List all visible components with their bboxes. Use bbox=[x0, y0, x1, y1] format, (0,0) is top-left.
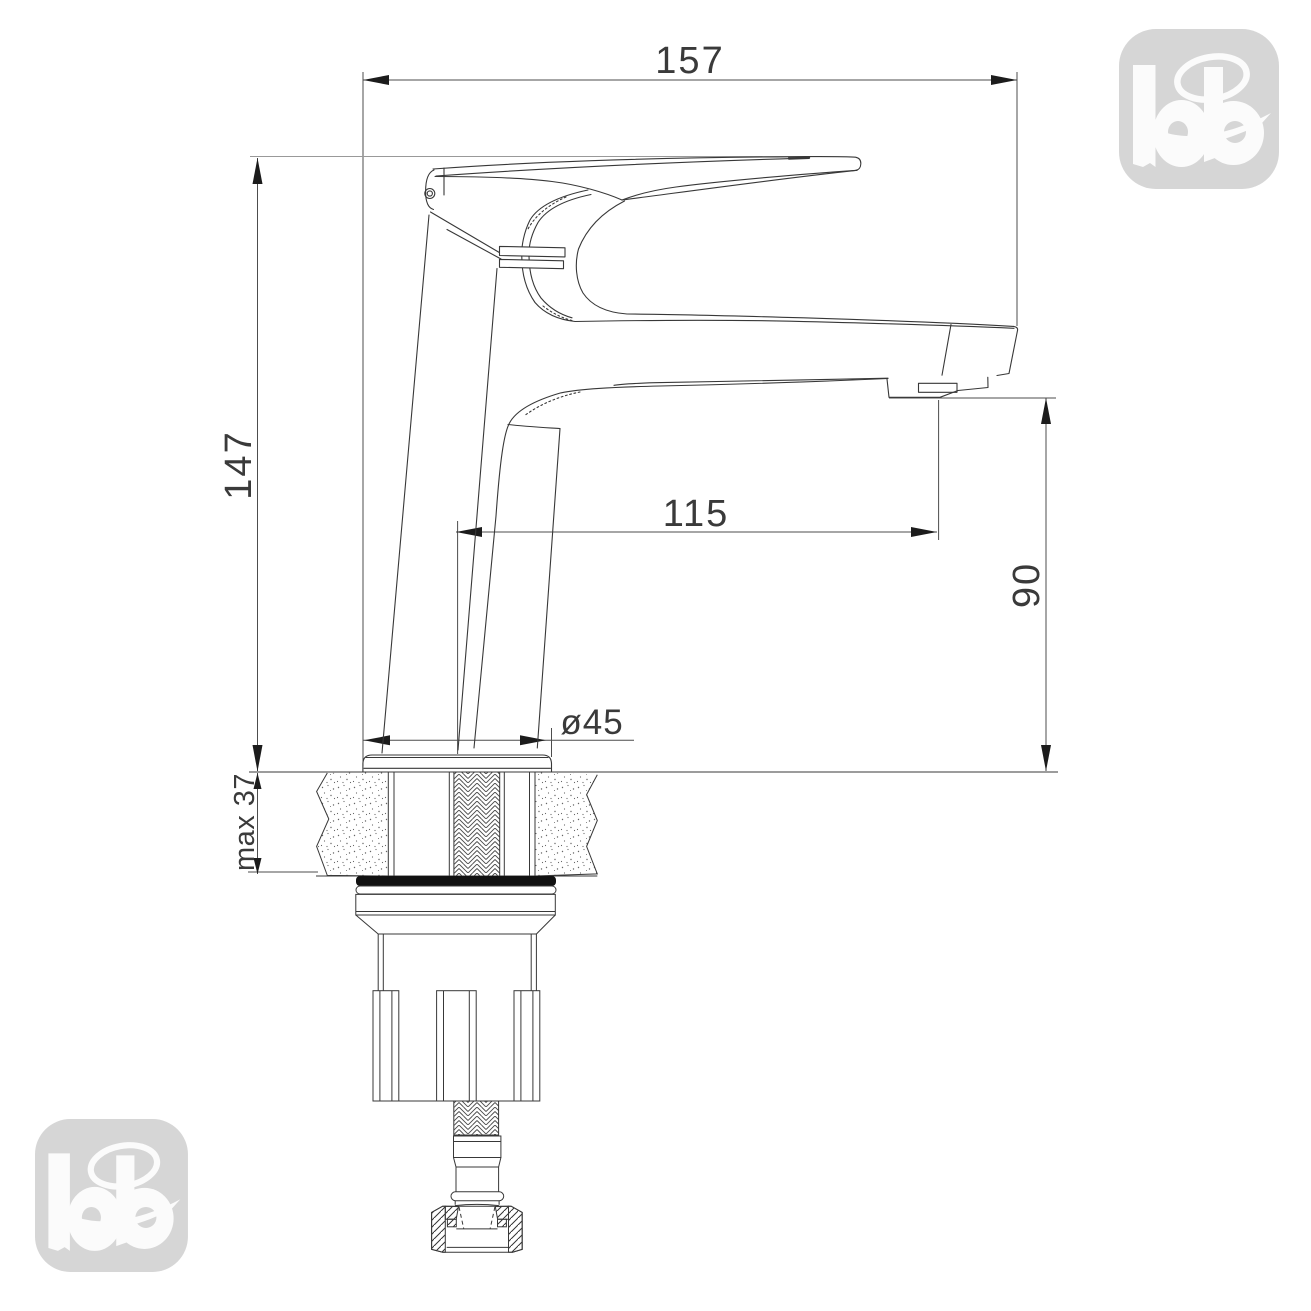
svg-text:157: 157 bbox=[655, 40, 724, 82]
svg-text:147: 147 bbox=[218, 430, 260, 499]
svg-text:90: 90 bbox=[1006, 562, 1048, 608]
svg-text:115: 115 bbox=[663, 493, 730, 535]
svg-text:max 37: max 37 bbox=[229, 773, 261, 871]
svg-text:ø45: ø45 bbox=[560, 703, 623, 742]
